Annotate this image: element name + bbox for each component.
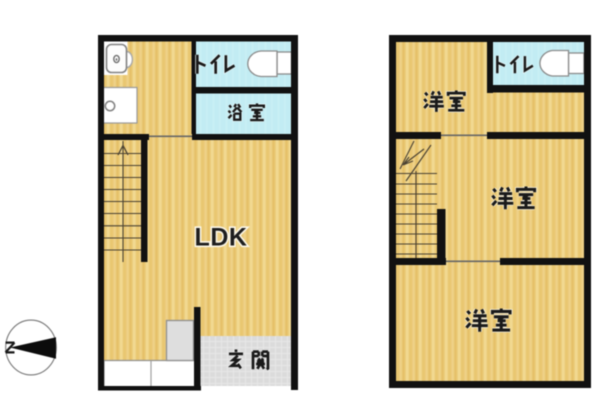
svg-text:LDK: LDK [195, 224, 248, 252]
